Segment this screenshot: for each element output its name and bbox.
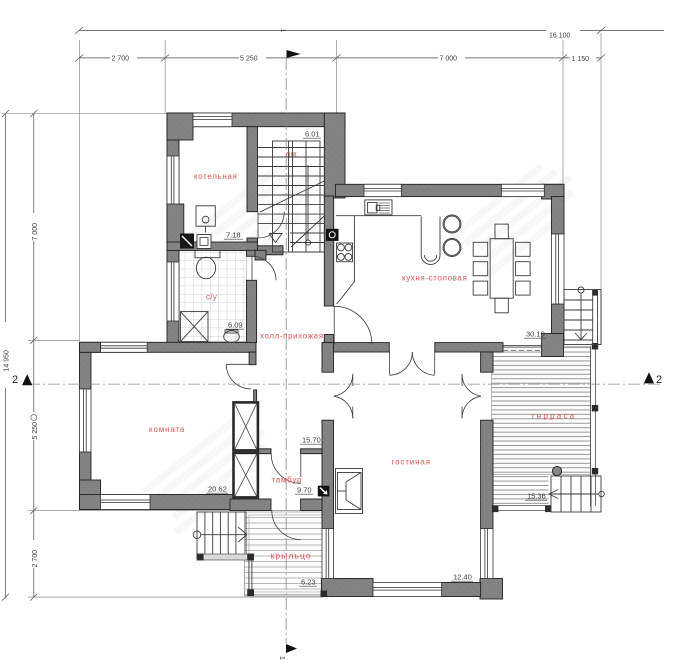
- svg-text:холл-прихожая: холл-прихожая: [260, 332, 324, 341]
- svg-text:15.36: 15.36: [527, 492, 546, 501]
- svg-text:котельная: котельная: [194, 172, 238, 181]
- svg-text:2: 2: [656, 374, 662, 386]
- svg-text:7 000: 7 000: [32, 223, 39, 241]
- svg-text:20.62: 20.62: [208, 485, 227, 494]
- svg-text:2: 2: [12, 374, 18, 386]
- svg-text:1: 1: [279, 29, 286, 33]
- svg-text:с/у: с/у: [206, 293, 217, 302]
- svg-text:1 150: 1 150: [572, 56, 590, 63]
- svg-text:7.18: 7.18: [226, 231, 241, 240]
- svg-text:6.09: 6.09: [228, 321, 243, 330]
- svg-text:14 950: 14 950: [4, 350, 11, 372]
- svg-text:крыльцо: крыльцо: [271, 551, 312, 561]
- svg-text:2 700: 2 700: [32, 550, 39, 568]
- svg-text:12.40: 12.40: [453, 573, 472, 582]
- svg-text:2 700: 2 700: [112, 56, 130, 63]
- svg-text:тамбур: тамбур: [272, 476, 303, 485]
- svg-text:15.70: 15.70: [302, 436, 321, 445]
- svg-text:9.70: 9.70: [297, 486, 312, 495]
- svg-text:16 100: 16 100: [549, 33, 571, 40]
- svg-text:5 250: 5 250: [32, 422, 39, 440]
- svg-text:кухня-столовая: кухня-столовая: [402, 274, 467, 283]
- svg-text:5 250: 5 250: [240, 56, 258, 63]
- svg-text:6.01: 6.01: [305, 130, 320, 139]
- svg-text:6.23: 6.23: [301, 578, 316, 587]
- svg-text:комната: комната: [149, 425, 185, 434]
- svg-text:л/к: л/к: [286, 150, 297, 159]
- svg-text:терраса: терраса: [531, 412, 576, 421]
- svg-text:гостиная: гостиная: [392, 458, 431, 467]
- svg-text:30.10: 30.10: [526, 330, 545, 339]
- svg-text:1: 1: [278, 656, 285, 660]
- svg-text:7 000: 7 000: [440, 56, 458, 63]
